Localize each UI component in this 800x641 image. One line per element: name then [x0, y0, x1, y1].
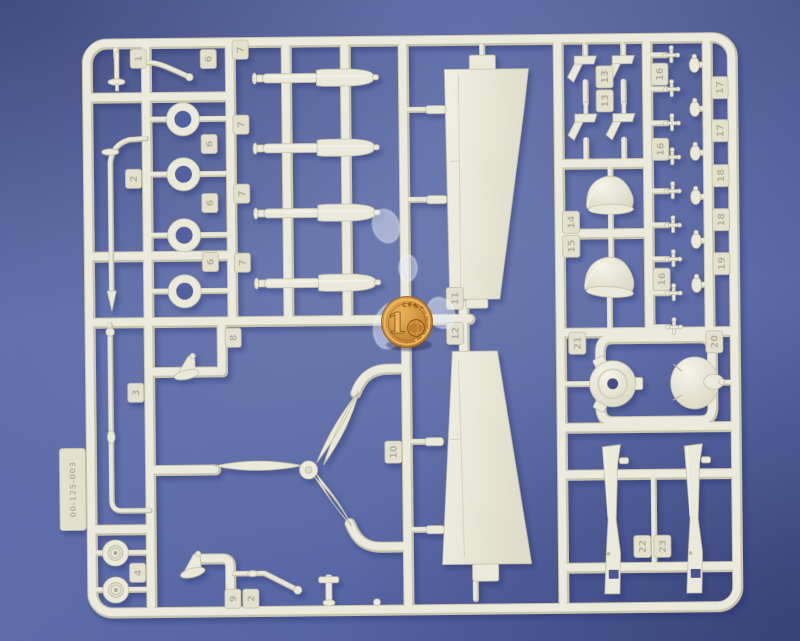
sprue-photo: 1 2 3 4 6 6 6 6 7 7 7 7 8 9 2 10 11 12 1…	[0, 0, 800, 641]
sprue-photo-canvas: 1 2 3 4 6 6 6 6 7 7 7 7 8 9 2 10 11 12 1…	[0, 0, 800, 641]
photo-grain-overlay	[0, 0, 800, 641]
